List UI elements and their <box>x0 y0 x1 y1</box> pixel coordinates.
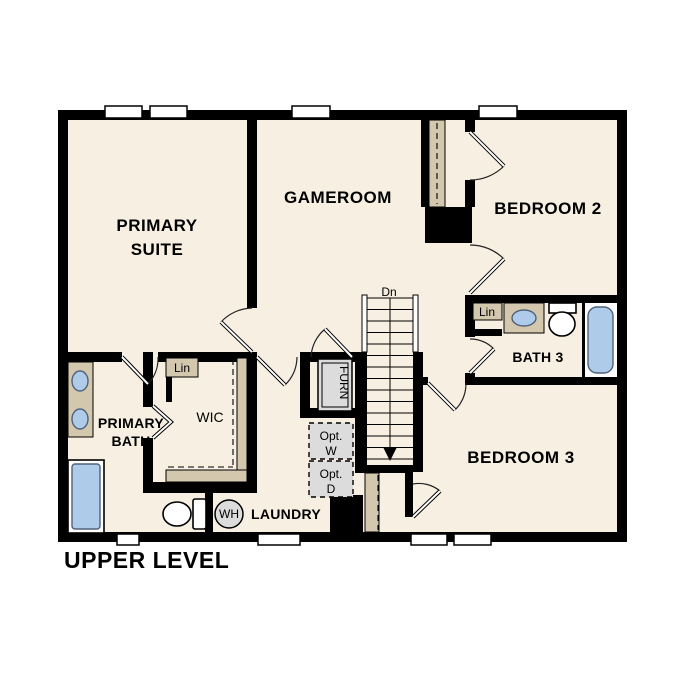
sink <box>72 409 88 429</box>
primary-suite-label-1: PRIMARY <box>116 216 197 235</box>
wall <box>355 465 413 473</box>
wic-rod-right <box>237 358 247 470</box>
window <box>479 106 517 118</box>
window <box>117 534 139 545</box>
water-heater-label: WH <box>219 507 239 521</box>
toilet-bowl <box>163 502 191 526</box>
toilet-tank <box>193 499 206 529</box>
stair-rail <box>362 295 367 352</box>
primary-bath-label-1: PRIMARY <box>98 415 165 431</box>
optional-washer-label-2: W <box>325 444 337 458</box>
window <box>150 106 187 118</box>
window <box>411 534 447 545</box>
optional-dryer-label-1: Opt. <box>320 467 343 481</box>
wall <box>405 472 413 517</box>
floor-plan-page: Dn Lin Lin FURN <box>0 0 687 687</box>
bedroom-2-label: BEDROOM 2 <box>494 199 601 218</box>
wall <box>465 295 627 303</box>
wall <box>247 120 257 308</box>
furnace-label: FURN <box>337 366 351 399</box>
wall <box>58 352 122 362</box>
wall <box>467 377 627 385</box>
wic-rod-bottom <box>166 470 247 482</box>
floor-plan-svg: Dn Lin Lin FURN <box>0 0 687 687</box>
sink <box>512 310 536 326</box>
primary-suite-label-2: SUITE <box>131 240 184 259</box>
linen-label: Lin <box>479 305 495 319</box>
stair-direction-label: Dn <box>381 285 396 299</box>
gameroom-label: GAMEROOM <box>284 188 392 207</box>
wall <box>247 352 257 492</box>
wic-label: WIC <box>196 409 223 425</box>
wall <box>166 377 172 402</box>
wall <box>143 482 257 493</box>
wall <box>465 120 475 132</box>
plan-title: UPPER LEVEL <box>64 547 229 573</box>
wall <box>465 329 502 336</box>
laundry-label: LAUNDRY <box>251 506 321 522</box>
chase-block <box>425 207 472 243</box>
linen-label: Lin <box>174 361 190 375</box>
window <box>105 106 142 118</box>
wall <box>465 180 475 207</box>
window <box>292 106 330 118</box>
toilet-bowl <box>549 312 575 336</box>
primary-bath-label-2: BATH <box>111 433 150 449</box>
shower-pan <box>72 464 100 529</box>
utility-block <box>330 495 363 542</box>
window <box>258 534 300 545</box>
bedroom3-closet-strip <box>365 473 379 532</box>
optional-washer-label-1: Opt. <box>320 429 343 443</box>
wall <box>355 352 367 472</box>
stair-rail <box>413 295 418 352</box>
optional-dryer-label-2: D <box>327 482 336 496</box>
sink <box>72 371 88 391</box>
bathtub <box>588 307 613 373</box>
bath-3-label: BATH 3 <box>512 349 563 365</box>
wall <box>420 377 428 385</box>
wall <box>421 120 429 207</box>
bedroom-3-label: BEDROOM 3 <box>467 448 574 467</box>
window <box>454 534 491 545</box>
wall <box>413 352 423 472</box>
